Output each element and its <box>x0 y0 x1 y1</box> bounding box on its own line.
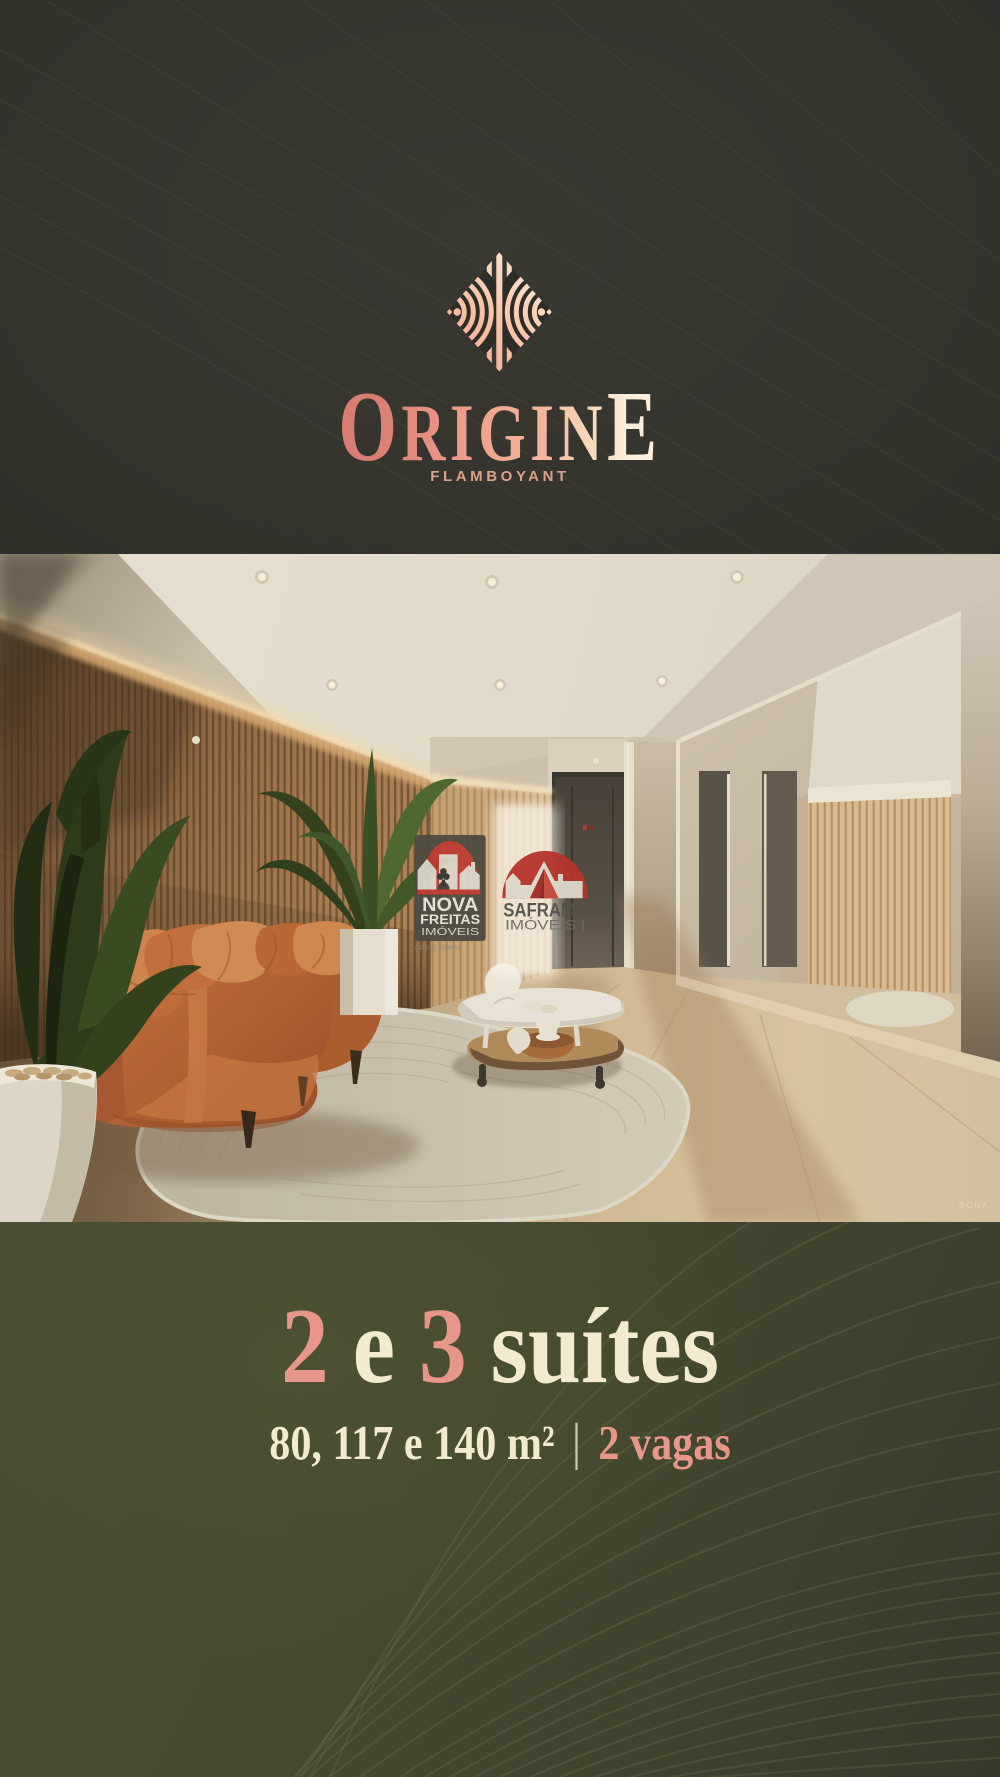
svg-text:IMÓVEIS: IMÓVEIS <box>421 925 479 938</box>
svg-text:IMÓVEIS |: IMÓVEIS | <box>505 918 585 933</box>
svg-text:CRECI: 10388J: CRECI: 10388J <box>415 945 460 952</box>
svg-text:FREITAS: FREITAS <box>420 912 480 927</box>
svg-text:BONA: BONA <box>959 1200 989 1210</box>
